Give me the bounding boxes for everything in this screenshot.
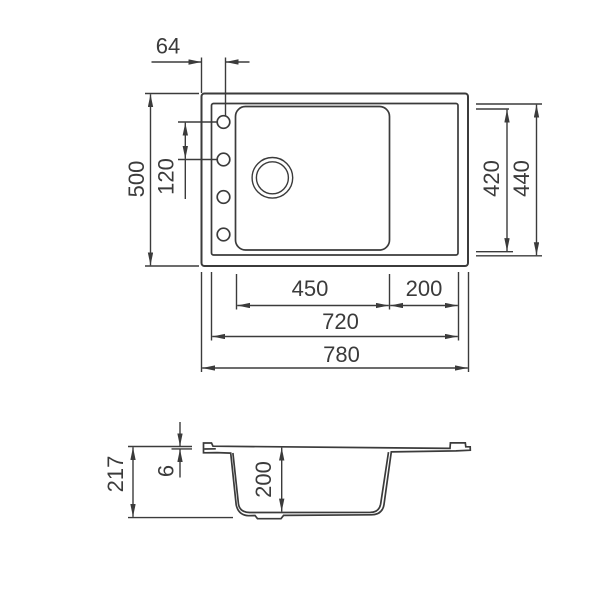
top-view: 64 500 120 420 440 [124,34,542,373]
dim-label-500: 500 [124,161,149,198]
dim-label-420: 420 [479,160,504,197]
dim-label-780: 780 [323,342,360,367]
dim-overall-width-780: 780 [202,342,468,368]
dim-hole-spacing-120: 120 [154,122,218,199]
dim-total-height-217: 217 [103,447,233,518]
dim-label-450: 450 [292,276,329,301]
dim-rim-width-720: 720 [212,309,458,337]
sink-rim-inner-edge [212,104,459,256]
dim-label-440: 440 [509,160,534,197]
bowl-outline [236,107,390,251]
faucet-hole-4 [217,228,230,241]
dim-label-64: 64 [156,34,180,59]
dim-bowl-width-450: 450 [237,276,389,306]
sink-profile-outline [204,443,471,519]
dim-label-200-top: 200 [406,276,443,301]
drain-inner-circle [256,162,288,194]
dim-rim-thickness-6: 6 [154,422,193,478]
dim-label-120: 120 [154,158,179,195]
dim-label-6: 6 [154,465,179,477]
faucet-hole-3 [217,191,230,204]
dim-bottom-chain: 450 200 720 780 [202,272,469,372]
dim-label-217: 217 [103,456,128,493]
sink-outer-edge [202,94,469,267]
dim-label-200-side: 200 [251,461,276,498]
dim-bowl-depth-200: 200 [251,448,282,512]
dim-drainboard-width-200: 200 [390,276,458,306]
faucet-hole-2 [217,153,230,166]
faucet-hole-1 [217,116,230,129]
sink-dimension-drawing: 64 500 120 420 440 [0,0,600,600]
dim-label-720: 720 [322,309,359,334]
drain-outer-circle [252,158,293,199]
side-view: 217 6 200 [103,422,470,519]
